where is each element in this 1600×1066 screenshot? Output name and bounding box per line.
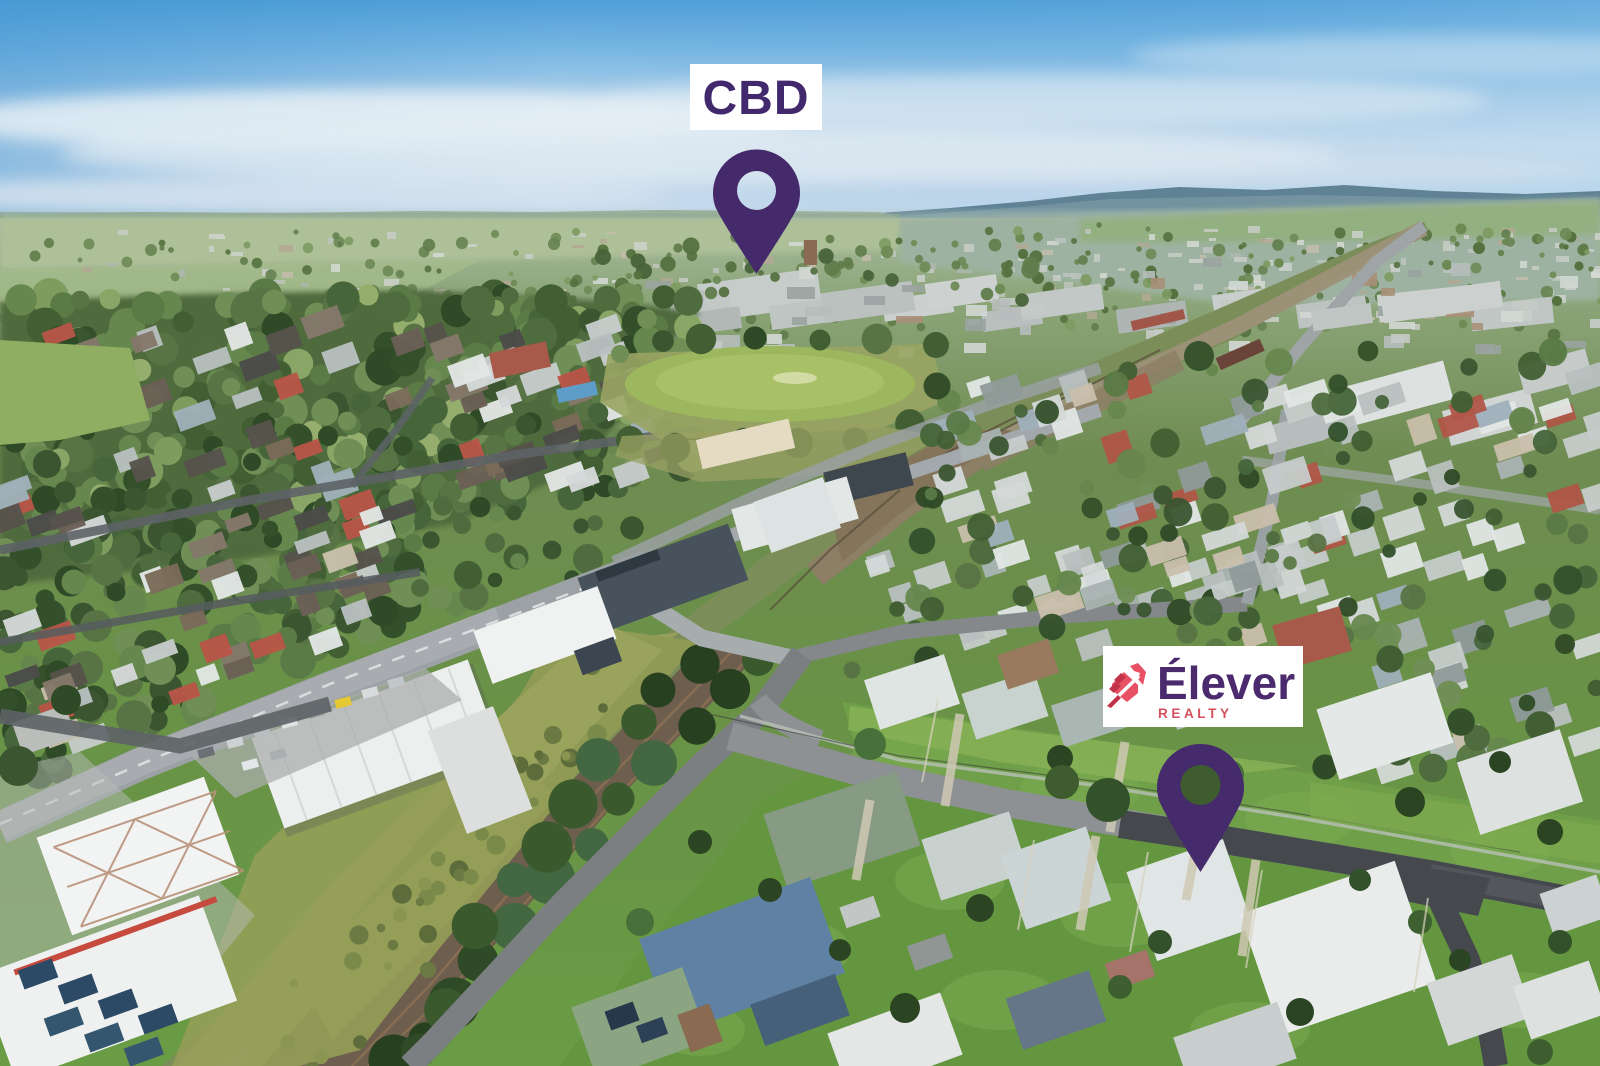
svg-text:Élever: Élever bbox=[1157, 657, 1295, 709]
svg-text:CBD: CBD bbox=[703, 72, 810, 125]
svg-text:REALTY: REALTY bbox=[1158, 706, 1233, 721]
